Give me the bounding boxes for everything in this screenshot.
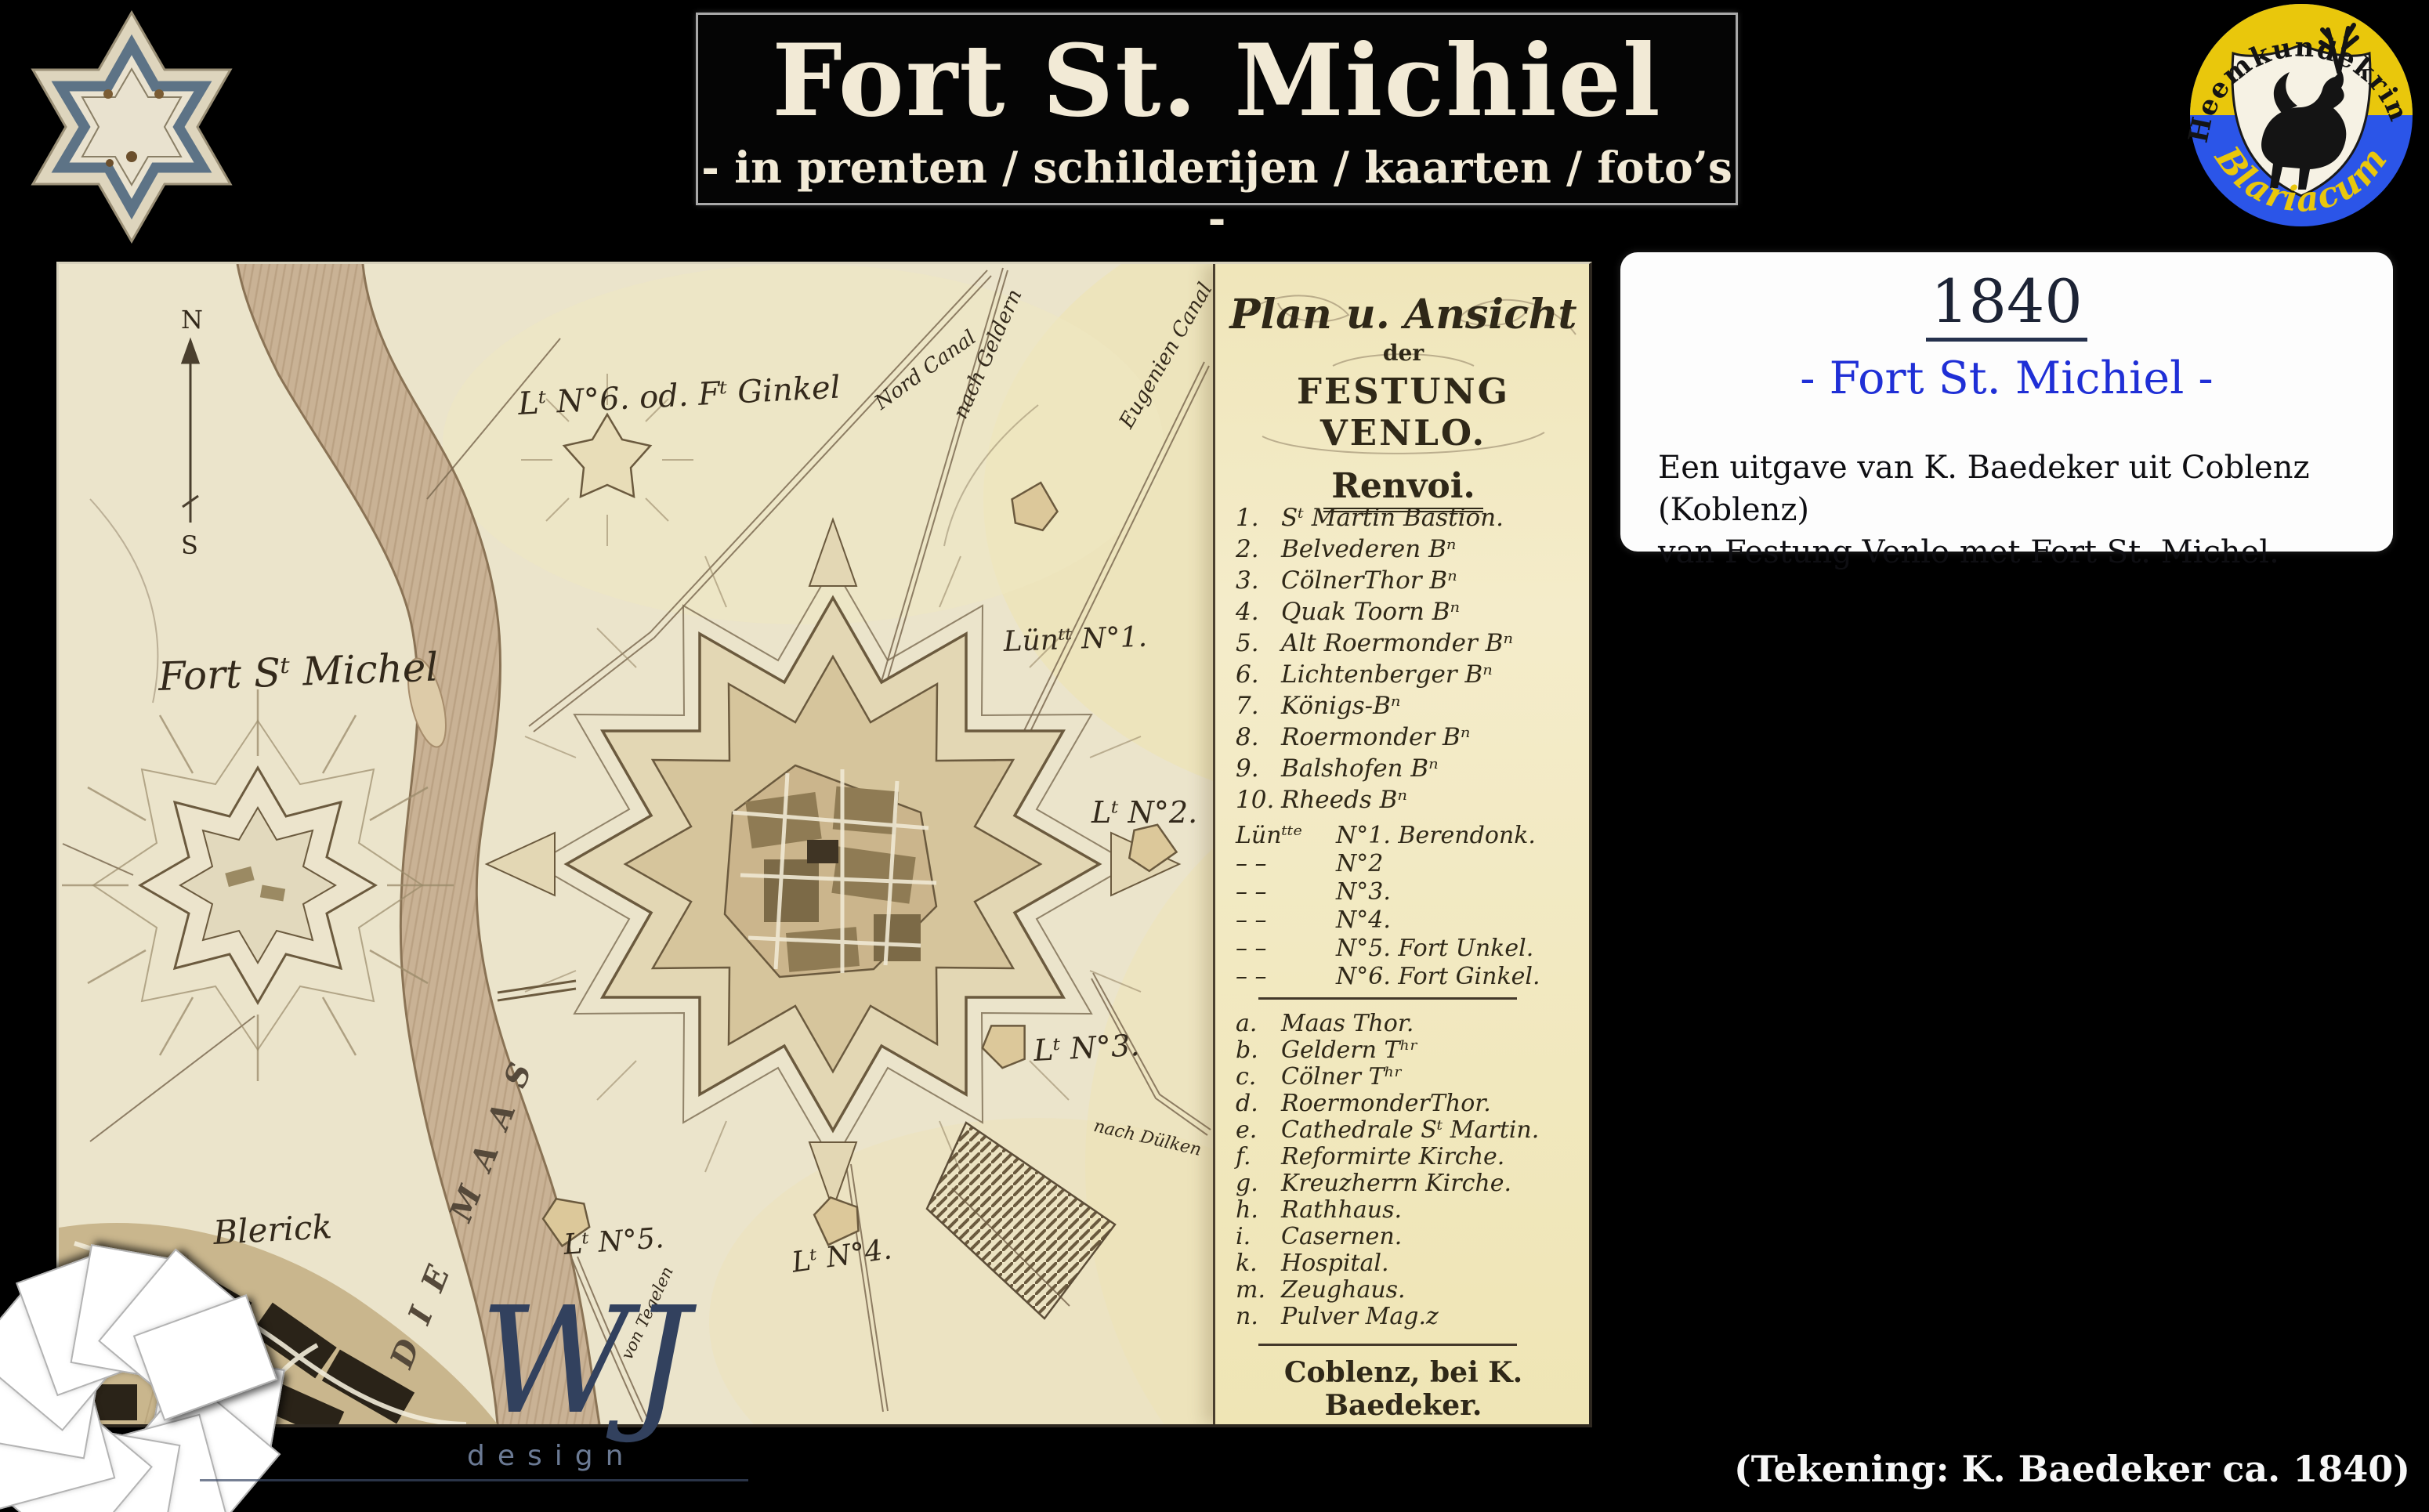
cartouche-line3: FESTUNG VENLO. [1215,371,1591,454]
label-lunette-2: Lᵗ N°2. [1091,795,1197,830]
cartouche-line1: Plan u. Ansicht [1215,291,1591,338]
legend-item: – – N°3. [1236,878,1584,906]
legend-item-text: Lichtenberger Bⁿ [1281,660,1493,692]
map-cartouche: Plan u. Ansicht der FESTUNG VENLO. [1215,291,1591,454]
legend-item-text: Quak Toorn Bⁿ [1281,598,1460,629]
legend-item: 4. Quak Toorn Bⁿ [1236,598,1584,629]
legend-item: 2. Belvederen Bⁿ [1236,535,1584,566]
legend-item-text: Zeughaus. [1281,1276,1406,1303]
legend-divider [1258,1344,1517,1346]
legend-item-text: Alt Roermonder Bⁿ [1281,629,1513,660]
legend-item: 10. Rheeds Bⁿ [1236,786,1584,817]
legend-item: b. Geldern Tʰʳ [1236,1036,1584,1063]
legend-item-number: 10. [1236,786,1281,817]
label-lunette-3: Lᵗ N°3. [1033,1028,1140,1068]
legend-item-text: Cathedrale Sᵗ Martin. [1281,1116,1539,1143]
info-year: 1840 [1620,266,2393,336]
legend-item: 8. Roermonder Bⁿ [1236,723,1584,754]
legend-item-text: Maas Thor. [1281,1010,1414,1036]
legend-item: – – N°4. [1236,906,1584,935]
legend-item-letter: h. [1236,1196,1281,1223]
map-legend-panel: Plan u. Ansicht der FESTUNG VENLO. Renvo… [1213,264,1591,1424]
legend-item: k. Hospital. [1236,1250,1584,1276]
legend-item: a. Maas Thor. [1236,1010,1584,1036]
legend-item-text: Kreuzherrn Kirche. [1281,1170,1511,1196]
legend-item-text: Geldern Tʰʳ [1281,1036,1418,1063]
legend-item-text: N°5. Fort Unkel. [1336,935,1533,963]
legend-item: i. Casernen. [1236,1223,1584,1250]
watermark-rule [200,1479,748,1481]
legend-item-number: 2. [1236,535,1281,566]
legend-item-text: Rathhaus. [1281,1196,1402,1223]
drawing-caption: (Tekening: K. Baedeker ca. 1840) [1734,1448,2410,1490]
legend-item: 3. CölnerThor Bⁿ [1236,566,1584,598]
legend-item: n. Pulver Mag.z [1236,1303,1584,1329]
info-body: Een uitgave van K. Baedeker uit Coblenz … [1658,447,2393,573]
cartouche-line2: der [1215,340,1591,366]
legend-item-number: 6. [1236,660,1281,692]
compass-north-label: N [181,305,203,335]
legend-item-text: RoermonderThor. [1281,1090,1491,1116]
legend-item-prefix: – – [1236,935,1336,963]
legend-item-number: 1. [1236,504,1281,535]
legend-item-number: 9. [1236,754,1281,786]
legend-item-text: N°3. [1336,878,1391,906]
label-blerick: Blerick [212,1207,333,1252]
legend-item-letter: g. [1236,1170,1281,1196]
legend-item: – – N°6. Fort Ginkel. [1236,963,1584,991]
legend-item-letter: n. [1236,1303,1281,1329]
legend-publisher: Coblenz, bei K. Baedeker. [1215,1356,1591,1422]
legend-divider [1258,997,1517,1000]
legend-item-number: 4. [1236,598,1281,629]
legend-item: 1. Sᵗ Martin Bastion. [1236,504,1584,535]
legend-item-prefix: – – [1236,963,1336,991]
legend-item-text: Rheeds Bⁿ [1281,786,1407,817]
legend-item-prefix: – – [1236,878,1336,906]
page-title: Fort St. Michiel [698,23,1736,139]
legend-item-letter: e. [1236,1116,1281,1143]
legend-item: e. Cathedrale Sᵗ Martin. [1236,1116,1584,1143]
compass-south-label: S [181,530,198,560]
watermark-sub: design [467,1440,635,1472]
legend-item-text: Sᵗ Martin Bastion. [1281,504,1504,535]
legend-item-text: Cölner Tʰʳ [1281,1063,1403,1090]
legend-item-text: Casernen. [1281,1223,1402,1250]
legend-item-letter: d. [1236,1090,1281,1116]
info-subtitle: - Fort St. Michiel - [1620,353,2393,404]
legend-item-number: 3. [1236,566,1281,598]
legend-item: Lünᵗᵗᵉ N°1. Berendonk. [1236,822,1584,850]
info-box: 1840 - Fort St. Michiel - Een uitgave va… [1620,252,2393,552]
legend-item-text: N°4. [1336,906,1391,935]
slide: Fort St. Michiel - in prenten / schilder… [0,0,2429,1512]
legend-item-text: N°6. Fort Ginkel. [1336,963,1540,991]
title-box: Fort St. Michiel - in prenten / schilder… [696,13,1738,205]
watermark-initials: WJ [480,1275,690,1447]
legend-item: m. Zeughaus. [1236,1276,1584,1303]
legend-lunette-list: Lünᵗᵗᵉ N°1. Berendonk. – – N°2 – – N°3. [1236,822,1584,991]
legend-item-prefix: Lünᵗᵗᵉ [1236,822,1336,850]
heemkundekring-logo: Heemkundekring Blariacum [2188,2,2415,229]
map-image: N S Lᵗ N°6. od. Fᵗ Ginkel Nord Canal nac… [56,262,1592,1427]
legend-item-prefix: – – [1236,906,1336,935]
legend-item-letter: m. [1236,1276,1281,1303]
legend-item-letter: k. [1236,1250,1281,1276]
legend-item-prefix: – – [1236,850,1336,878]
legend-item-number: 8. [1236,723,1281,754]
legend-item: 5. Alt Roermonder Bⁿ [1236,629,1584,660]
label-lunette-1: Lünᵗᵗ N°1. [1003,621,1148,658]
legend-item-text: Reformirte Kirche. [1281,1143,1504,1170]
legend-item: c. Cölner Tʰʳ [1236,1063,1584,1090]
legend-item-number: 7. [1236,692,1281,723]
legend-item: – – N°2 [1236,850,1584,878]
legend-item-letter: c. [1236,1063,1281,1090]
legend-item: g. Kreuzherrn Kirche. [1236,1170,1584,1196]
legend-title: Renvoi. [1215,466,1591,506]
legend-item-number: 5. [1236,629,1281,660]
legend-item-text: Balshofen Bⁿ [1281,754,1439,786]
legend-item: – – N°5. Fort Unkel. [1236,935,1584,963]
info-body-line1: Een uitgave van K. Baedeker uit Coblenz … [1658,447,2393,531]
info-body-line2: van Festung Venlo met Fort St. Michel. [1658,531,2393,573]
legend-item: h. Rathhaus. [1236,1196,1584,1223]
legend-item-text: N°1. Berendonk. [1336,822,1536,850]
legend-item-text: Roermonder Bⁿ [1281,723,1470,754]
legend-numbered-list: 1. Sᵗ Martin Bastion. 2. Belvederen Bⁿ 3… [1236,504,1584,817]
star-fort-logo [14,0,249,249]
legend-item-letter: a. [1236,1010,1281,1036]
page-subtitle: - in prenten / schilderijen / kaarten / … [698,142,1736,244]
legend-item-text: Königs-Bⁿ [1281,692,1400,723]
legend-item: 9. Balshofen Bⁿ [1236,754,1584,786]
legend-lettered-list: a. Maas Thor. b. Geldern Tʰʳ c. Cölner T… [1236,1010,1584,1329]
legend-item-text: CölnerThor Bⁿ [1281,566,1457,598]
legend-item-letter: i. [1236,1223,1281,1250]
legend-item-text: Pulver Mag.z [1281,1303,1439,1329]
legend-item-text: N°2 [1336,850,1383,878]
legend-item-letter: f. [1236,1143,1281,1170]
legend-item-text: Hospital. [1281,1250,1389,1276]
legend-item: d. RoermonderThor. [1236,1090,1584,1116]
legend-item: 7. Königs-Bⁿ [1236,692,1584,723]
legend-item: 6. Lichtenberger Bⁿ [1236,660,1584,692]
legend-item: f. Reformirte Kirche. [1236,1143,1584,1170]
legend-item-letter: b. [1236,1036,1281,1063]
legend-item-text: Belvederen Bⁿ [1281,535,1456,566]
